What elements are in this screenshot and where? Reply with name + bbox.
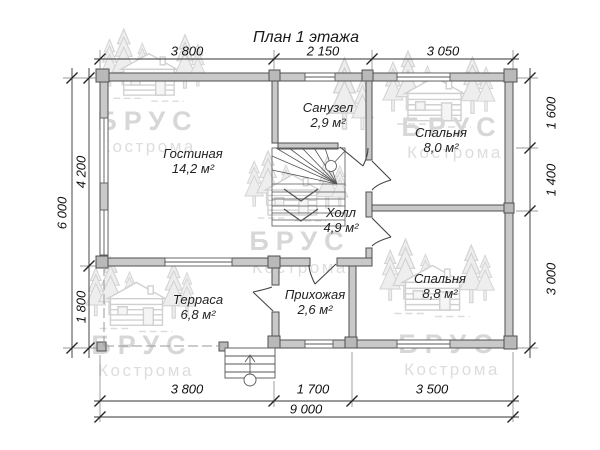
room-area: 2,6 м²	[285, 302, 345, 317]
dim-top-3: 3 050	[427, 44, 460, 59]
dim-left-1: 4 200	[74, 156, 89, 189]
dim-bottom-1: 3 800	[171, 382, 204, 397]
watermark-brand-text: БРУС	[97, 106, 198, 136]
floor-plan-page: БРУС Кострома БРУС Кострома БРУС Костром…	[0, 0, 600, 450]
room-name: Терраса	[173, 292, 223, 307]
room-label-living: Гостиная 14,2 м²	[163, 146, 222, 176]
dim-bottom-total: 9 000	[290, 402, 323, 417]
room-label-bathroom: Санузел 2,9 м²	[303, 100, 353, 130]
room-label-hall: Холл 4,9 м²	[324, 205, 359, 235]
dim-left-2: 1 800	[74, 291, 89, 324]
room-area: 2,9 м²	[303, 115, 353, 130]
room-label-bedroom-top: Спальня 8,0 м²	[415, 125, 467, 155]
room-area: 14,2 м²	[163, 161, 222, 176]
dim-bottom-3: 3 500	[416, 382, 449, 397]
dim-right-3: 3 000	[544, 263, 559, 296]
room-area: 4,9 м²	[324, 220, 359, 235]
room-name: Холл	[324, 205, 359, 220]
room-name: Спальня	[415, 125, 467, 140]
room-area: 8,0 м²	[415, 140, 467, 155]
dim-right-1: 1 600	[544, 97, 559, 130]
dim-top-1: 3 800	[171, 44, 204, 59]
terrace-door	[253, 287, 273, 311]
room-area: 6,8 м²	[173, 307, 223, 322]
watermark-brand-text: БРУС	[91, 330, 192, 360]
watermark-city-text: Кострома	[98, 361, 194, 380]
room-area: 8,8 м²	[414, 286, 466, 301]
room-label-bedroom-bottom: Спальня 8,8 м²	[414, 271, 466, 301]
room-label-entry: Прихожая 2,6 м²	[285, 287, 345, 317]
room-name: Спальня	[414, 271, 466, 286]
bedroom-bottom-door	[372, 218, 391, 246]
room-label-terrace: Терраса 6,8 м²	[173, 292, 223, 322]
dim-bottom-2: 1 700	[297, 382, 330, 397]
room-name: Прихожая	[285, 287, 345, 302]
dim-right-2: 1 400	[544, 164, 559, 197]
bathroom-door	[340, 147, 368, 166]
watermark-city-text: Кострома	[404, 360, 500, 379]
dim-left-total: 6 000	[55, 197, 70, 230]
watermark-layer: БРУС Кострома БРУС Кострома БРУС Костром…	[86, 29, 503, 380]
room-name: Гостиная	[163, 146, 222, 161]
dim-top-2: 2 150	[307, 44, 340, 59]
room-name: Санузел	[303, 100, 353, 115]
entrance-steps	[225, 348, 275, 386]
bedroom-top-door	[372, 161, 391, 190]
